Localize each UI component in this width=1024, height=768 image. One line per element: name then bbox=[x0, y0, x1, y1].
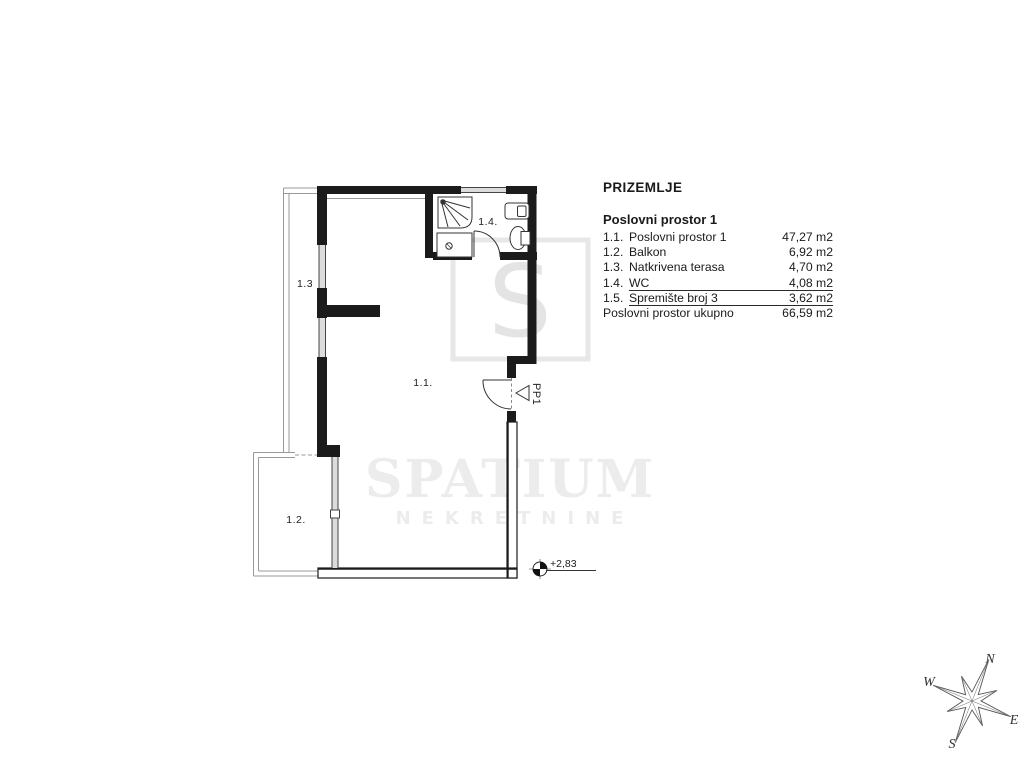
legend-row: 1.5. Spremište broj 33,62 m2 bbox=[603, 291, 833, 306]
elevation-marker: +2,83 bbox=[529, 558, 596, 579]
row-name: WC bbox=[629, 276, 649, 290]
total-name: Poslovni prostor ukupno bbox=[603, 306, 734, 321]
legend-subtitle: Poslovni prostor 1 bbox=[603, 212, 717, 227]
door-label: PP1 bbox=[530, 383, 542, 405]
compass-label-e: E bbox=[1009, 713, 1019, 728]
row-area: 6,92 m2 bbox=[789, 245, 833, 260]
sink bbox=[505, 203, 529, 219]
row-name: Balkon bbox=[629, 245, 666, 260]
row-name: Poslovni prostor 1 bbox=[629, 230, 727, 245]
total-area: 66,59 m2 bbox=[782, 306, 833, 321]
compass-label-w: W bbox=[923, 675, 936, 690]
legend-total-row: Poslovni prostor ukupno66,59 m2 bbox=[603, 306, 833, 321]
room-label-1-3: 1.3 bbox=[297, 278, 313, 290]
floor-plan-sheet: S SPATIUM NEKRETNINE bbox=[0, 0, 1024, 768]
room-label-1-1: 1.1. bbox=[413, 377, 433, 389]
row-area: 3,62 m2 bbox=[789, 291, 833, 305]
watermark-letter: S bbox=[488, 243, 551, 360]
row-number: 1.2. bbox=[603, 245, 629, 260]
floor-plan-svg: S SPATIUM NEKRETNINE bbox=[0, 0, 1024, 768]
legend-title: PRIZEMLJE bbox=[603, 180, 682, 195]
compass-label-s: S bbox=[949, 737, 956, 752]
row-number: 1.1. bbox=[603, 230, 629, 245]
legend-row: 1.3. Natkrivena terasa4,70 m2 bbox=[603, 260, 833, 275]
row-number: 1.4. bbox=[603, 276, 629, 291]
terrace-outline bbox=[284, 188, 318, 453]
row-area: 47,27 m2 bbox=[782, 230, 833, 245]
shower bbox=[438, 197, 472, 228]
compass-rose: N W E S bbox=[916, 644, 1024, 759]
row-name: Spremište broj 3 bbox=[629, 291, 718, 305]
row-number: 1.3. bbox=[603, 260, 629, 275]
elevation-label: +2,83 bbox=[550, 558, 577, 570]
entrance-door bbox=[483, 378, 529, 411]
legend-row: 1.1. Poslovni prostor 147,27 m2 bbox=[603, 230, 833, 245]
room-label-1-2: 1.2. bbox=[286, 514, 306, 526]
door-direction-arrow bbox=[516, 386, 529, 401]
legend-row: 1.2. Balkon6,92 m2 bbox=[603, 245, 833, 260]
washing-machine bbox=[437, 233, 472, 257]
row-area: 4,08 m2 bbox=[789, 276, 833, 290]
row-number: 1.5. bbox=[603, 291, 629, 306]
legend-table: 1.1. Poslovni prostor 147,27 m2 1.2. Bal… bbox=[603, 230, 833, 321]
legend-row: 1.4. WC4,08 m2 bbox=[603, 276, 833, 291]
compass-label-n: N bbox=[984, 652, 995, 667]
row-name: Natkrivena terasa bbox=[629, 260, 725, 275]
row-area: 4,70 m2 bbox=[789, 260, 833, 275]
room-label-1-4: 1.4. bbox=[478, 216, 498, 228]
